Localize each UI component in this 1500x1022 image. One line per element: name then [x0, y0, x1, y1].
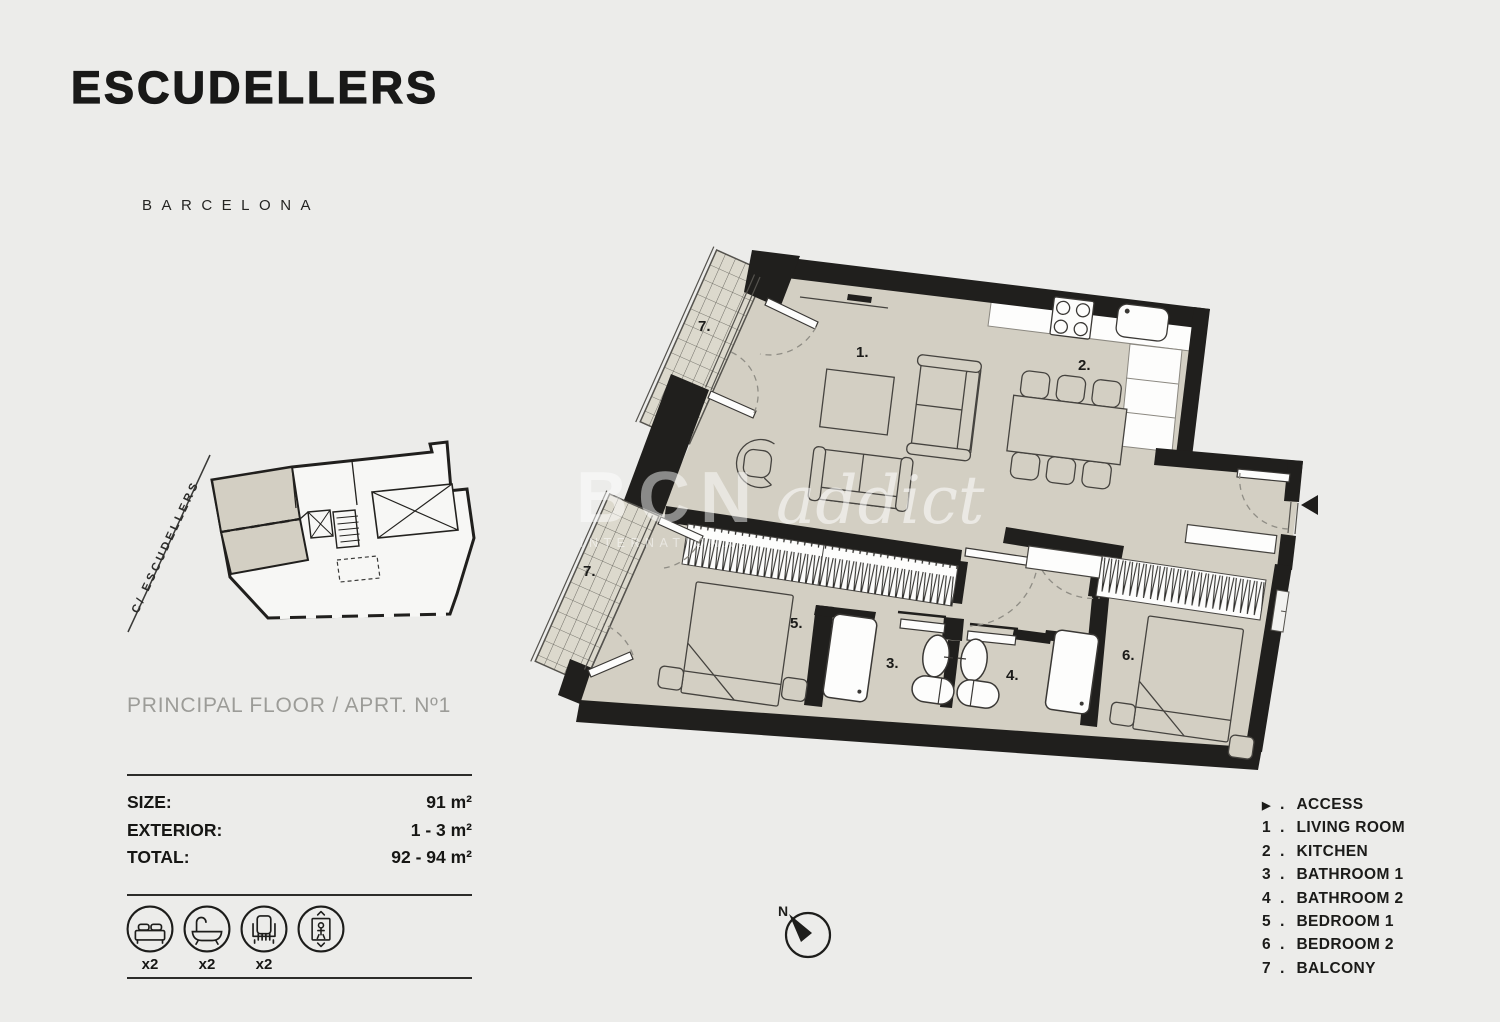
- legend-item-bathroom-1: 3. BATHROOM 1: [1262, 866, 1405, 889]
- legend-item-bedroom-1: 5. BEDROOM 1: [1262, 913, 1405, 936]
- room-label-bedroom2: 6.: [1122, 647, 1135, 664]
- legend-marker: 2: [1262, 843, 1278, 861]
- legend-item-kitchen: 2. KITCHEN: [1262, 843, 1405, 866]
- brochure-page: ESCUDELLERS BARCELONA PRINCIPAL FLOOR / …: [0, 0, 1500, 1022]
- site-plan: C/ ESCUDELLERS: [128, 442, 474, 632]
- legend-marker: 3: [1262, 866, 1278, 884]
- legend-item-bedroom-2: 6. BEDROOM 2: [1262, 936, 1405, 959]
- legend-item-balcony: 7. BALCONY: [1262, 960, 1405, 983]
- legend-label: ACCESS: [1296, 796, 1363, 814]
- legend-marker: 1: [1262, 819, 1278, 837]
- legend-item-living-room: 1. LIVING ROOM: [1262, 819, 1405, 842]
- room-label-bathroom1: 3.: [886, 655, 899, 672]
- room-label-balcony-top: 7.: [698, 318, 711, 335]
- legend-marker: 4: [1262, 890, 1278, 908]
- legend-label: BALCONY: [1296, 960, 1375, 978]
- compass-north-label: N: [778, 903, 788, 919]
- room-label-bathroom2: 4.: [1006, 667, 1019, 684]
- legend-item-bathroom-2: 4. BATHROOM 2: [1262, 890, 1405, 913]
- legend-item-access: ▶. ACCESS: [1262, 796, 1405, 819]
- room-label-living: 1.: [856, 344, 869, 361]
- street-label: C/ ESCUDELLERS: [130, 479, 202, 616]
- legend-label: BEDROOM 2: [1296, 936, 1393, 954]
- legend-label: BATHROOM 2: [1296, 890, 1403, 908]
- legend-marker-arrow-icon: ▶: [1262, 799, 1278, 812]
- legend-marker: 5: [1262, 913, 1278, 931]
- legend-marker: 7: [1262, 960, 1278, 978]
- room-legend: ▶. ACCESS 1. LIVING ROOM 2. KITCHEN 3. B…: [1262, 796, 1405, 983]
- room-label-bedroom1: 5.: [790, 615, 803, 632]
- access-arrow-icon: [1301, 495, 1318, 515]
- legend-label: LIVING ROOM: [1296, 819, 1405, 837]
- apartment-plan: 1. 2. 3. 4. 5. 6. 7. 7.: [531, 247, 1318, 770]
- compass-icon: N: [778, 903, 830, 957]
- room-label-kitchen: 2.: [1078, 357, 1091, 374]
- legend-label: KITCHEN: [1296, 843, 1368, 861]
- legend-label: BEDROOM 1: [1296, 913, 1393, 931]
- legend-label: BATHROOM 1: [1296, 866, 1403, 884]
- room-label-balcony-bottom: 7.: [583, 563, 596, 580]
- legend-marker: 6: [1262, 936, 1278, 954]
